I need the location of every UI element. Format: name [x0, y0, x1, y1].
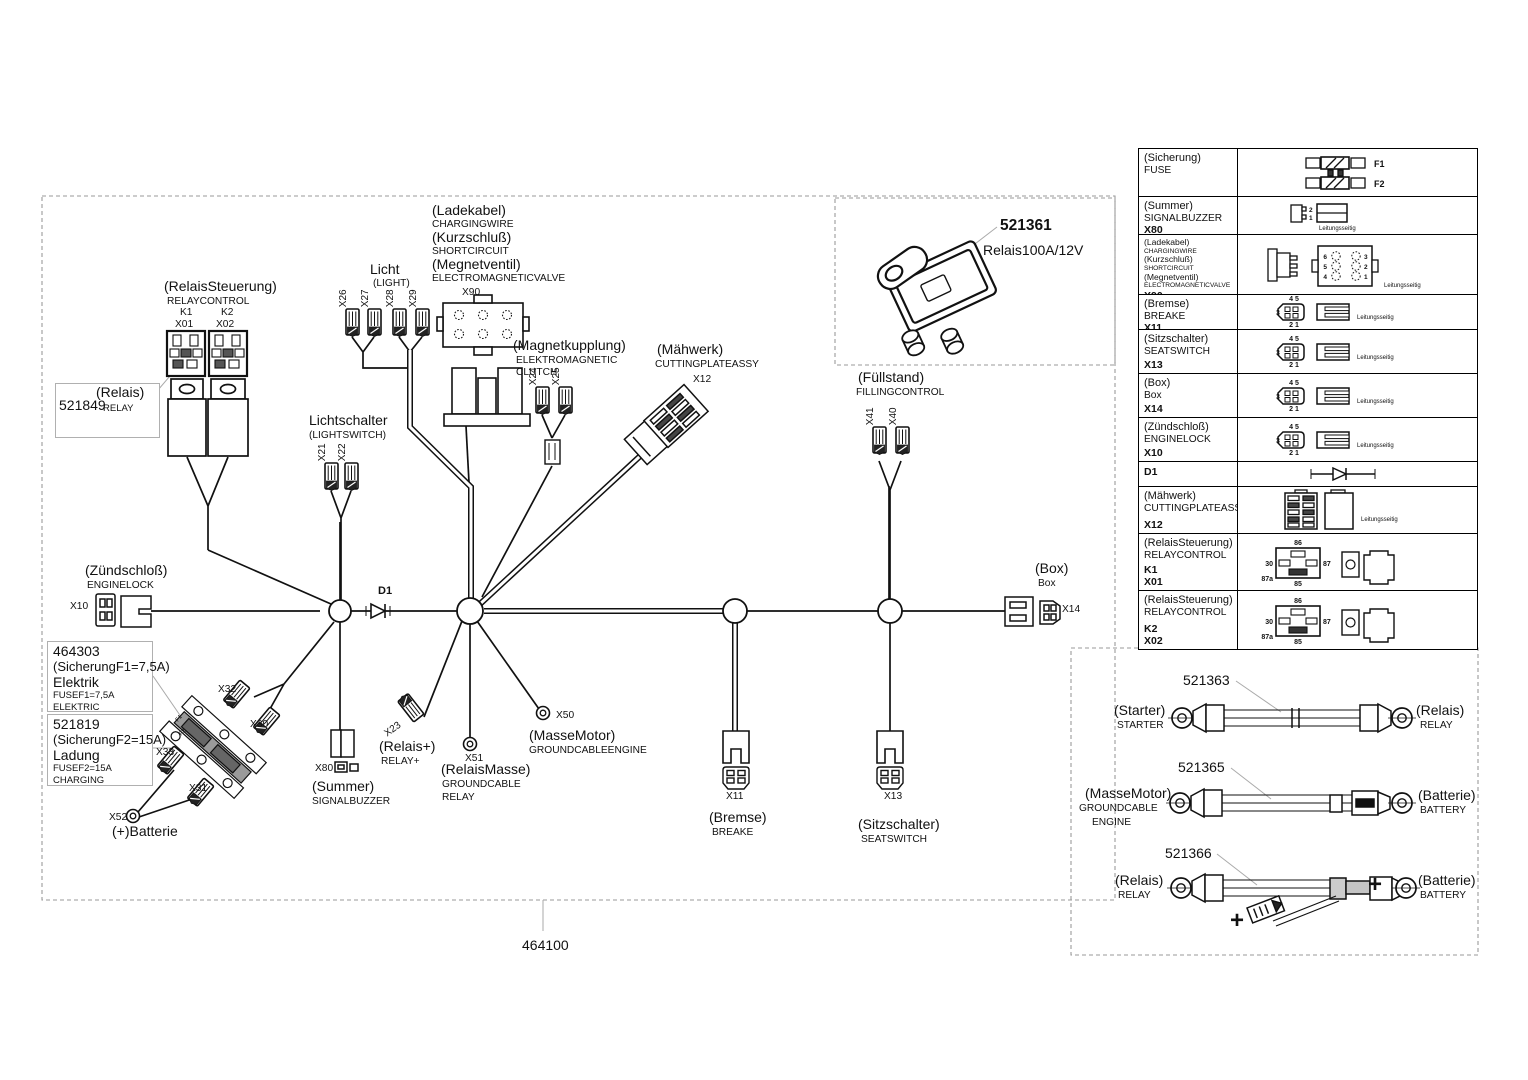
- inset-part-number: 521361: [1000, 217, 1052, 234]
- box-connector-drawing: [1005, 597, 1060, 626]
- connector-x90-label: X90: [462, 287, 480, 298]
- connector-x24-label: X24: [528, 367, 539, 385]
- connector-x26-label: X26: [338, 289, 349, 307]
- diode-d1-label: D1: [378, 585, 392, 597]
- inset-relay-name: Relais100A/12V: [983, 243, 1083, 259]
- connector-x50-label: X50: [556, 710, 574, 721]
- groundengine-label-en: GROUNDCABLEENGINE: [529, 745, 647, 756]
- cable1-right-en: RELAY: [1420, 720, 1453, 731]
- svg-text:F1: F1: [1374, 159, 1385, 169]
- box-label-en: Box: [1038, 578, 1056, 589]
- connector-x13-label: X13: [884, 791, 902, 802]
- cable-521366-drawing: [1167, 874, 1420, 926]
- enginelock-label-de: (Zündschloß): [85, 563, 167, 579]
- svg-text:1: 1: [1364, 274, 1368, 281]
- cable2-part-number: 521365: [1178, 760, 1225, 776]
- cable3-left-de: (Relais): [1115, 873, 1163, 889]
- cable3-part-number: 521366: [1165, 846, 1212, 862]
- x12-legend-icon: Leitungsseitig: [1273, 489, 1443, 531]
- junction-2: [457, 598, 483, 624]
- cable1-left-en: STARTER: [1117, 720, 1164, 731]
- svg-text:Leitungsseitig: Leitungsseitig: [1384, 283, 1421, 289]
- brake-label-de: (Bremse): [709, 810, 767, 826]
- table-row-brake: (Bremse)BREAKEX11: [1139, 295, 1477, 330]
- groundrelay-label-de: (RelaisMasse): [441, 762, 530, 778]
- relayplus-label-en: RELAY+: [381, 756, 420, 767]
- plus-marker-battery: +: [1368, 872, 1382, 899]
- cable1-left-de: (Starter): [1114, 703, 1165, 719]
- cutting-connector-drawing: [624, 385, 708, 465]
- svg-text:1: 1: [1309, 215, 1313, 222]
- wiring-diagram-page: 4 5 3 2 1 Leitungsseitig 86 30 87 87a 85: [0, 0, 1528, 1080]
- filling-label-en: FILLINGCONTROL: [856, 387, 944, 398]
- cable-521365-drawing: [1166, 789, 1416, 817]
- table-row-buzzer: (Summer)SIGNALBUZZERX80 2 1 Leitungsseit…: [1139, 197, 1477, 235]
- buzzer-label-de: (Summer): [312, 779, 374, 795]
- seat-label-en: SEATSWITCH: [861, 834, 927, 845]
- harness-part-number: 464100: [522, 938, 569, 954]
- table-row-box: (Box)BoxX14: [1139, 374, 1477, 418]
- table-row-enginelock: (Zündschloß)ENGINELOCKX10: [1139, 418, 1477, 462]
- cable2-right-de: (Batterie): [1418, 788, 1476, 804]
- connector-x80-label: X80: [315, 763, 333, 774]
- connector-x29-label: X29: [408, 289, 419, 307]
- table-row-relay-k1: (RelaisSteuerung)RELAYCONTROL K1X01: [1139, 534, 1477, 591]
- connector-x32-label: X32: [218, 684, 236, 695]
- clutch-label-de: (Magnetkupplung): [513, 338, 626, 354]
- cable2-right-en: BATTERY: [1420, 805, 1466, 816]
- enginelock-label-en: ENGINELOCK: [87, 580, 154, 591]
- box-label-de: (Box): [1035, 561, 1068, 577]
- relay-k2-label: K2: [221, 307, 233, 318]
- connector-x22-label: X22: [337, 443, 348, 461]
- fuse-icon: F1 F2: [1278, 152, 1438, 194]
- connector-x28-label: X28: [385, 289, 396, 307]
- seat-label-de: (Sitzschalter): [858, 817, 940, 833]
- connector-x52-label: X52: [109, 812, 127, 823]
- buzzer-drawing: [331, 730, 358, 772]
- connector-x10-label: X10: [70, 601, 88, 612]
- svg-text:F2: F2: [1374, 179, 1385, 189]
- table-row-seat: (Sitzschalter)SEATSWITCHX13: [1139, 330, 1477, 374]
- table-row-fuse: (Sicherung)FUSE F1 F2: [1139, 149, 1477, 197]
- relay-part-en: RELAY: [103, 404, 133, 415]
- relay-x02-label: X02: [216, 319, 234, 330]
- cable1-right-de: (Relais): [1416, 703, 1464, 719]
- cutting-label-en: CUTTINGPLATEASSY: [655, 359, 759, 370]
- relay-100a-drawing: [873, 240, 997, 372]
- cable1-part-number: 521363: [1183, 673, 1230, 689]
- connector-x27-label: X27: [360, 289, 371, 307]
- cable2-left-en2: ENGINE: [1092, 817, 1131, 828]
- svg-text:2: 2: [1309, 207, 1313, 214]
- battery-plus-label: (+)Batterie: [112, 824, 178, 840]
- enginelock-connector-drawing: [96, 594, 151, 627]
- minus-marker: [1356, 799, 1374, 807]
- svg-text:4: 4: [1323, 274, 1327, 281]
- connector-x11-label: X11: [726, 791, 743, 802]
- svg-text:Leitungsseitig: Leitungsseitig: [1319, 226, 1356, 232]
- junction-3: [723, 599, 747, 623]
- brake-connector-drawing: [723, 731, 749, 763]
- groundrelay-label-en1: GROUNDCABLE: [442, 779, 521, 790]
- cable-521363-drawing: [1168, 704, 1416, 732]
- connector-x25-label: X25: [551, 367, 562, 385]
- svg-text:2: 2: [1364, 264, 1368, 271]
- connector-legend-table: (Sicherung)FUSE F1 F2 (Summer)SIGNALBUZZ…: [1138, 148, 1478, 650]
- seat-connector-drawing: [877, 731, 903, 763]
- diode-legend-icon: [1303, 465, 1413, 483]
- table-row-relay-k2: (RelaisSteuerung)RELAYCONTROL K2X02: [1139, 591, 1477, 649]
- cable3-right-en: BATTERY: [1420, 890, 1466, 901]
- groundengine-label-de: (MasseMotor): [529, 728, 615, 744]
- relay-x01-label: X01: [175, 319, 193, 330]
- connector-x21-label: X21: [317, 443, 328, 461]
- relay-k1-label: K1: [180, 307, 192, 318]
- connector-x41-label: X41: [865, 407, 876, 425]
- relay-bodies-drawing: [168, 379, 248, 456]
- plus-marker-branch: +: [1230, 908, 1244, 935]
- relaycontrol-label-en: RELAYCONTROL: [167, 296, 249, 307]
- cutting-label-de: (Mähwerk): [657, 342, 723, 358]
- connector-x14-label: X14: [1062, 604, 1080, 615]
- svg-text:3: 3: [1364, 254, 1368, 261]
- relay-sockets-drawing: [167, 331, 247, 376]
- fuse1-part-box: 464303 (SicherungF1=7,5A) Elektrik FUSEF…: [47, 641, 153, 712]
- table-row-cutting: (Mähwerk)CUTTINGPLATEASSYX12 Leitungssei…: [1139, 487, 1477, 534]
- x90-legend-icon: 6 5 4 3 2 1 Leitungsseitig: [1260, 238, 1455, 292]
- charging-label-block: (Ladekabel) CHARGINGWIRE (Kurzschluß) SH…: [432, 203, 565, 284]
- svg-text:6: 6: [1323, 254, 1327, 261]
- table-row-x90: (Ladekabel)CHARGINGWIRE (Kurzschluß)SHOR…: [1139, 235, 1477, 295]
- light-label-de: Licht: [370, 262, 400, 278]
- table-row-diode: D1: [1139, 462, 1477, 487]
- cable3-right-de: (Batterie): [1418, 873, 1476, 889]
- brake-label-en: BREAKE: [712, 827, 753, 838]
- buzzer-icon: 2 1 Leitungsseitig: [1283, 200, 1433, 232]
- light-label-en: (LIGHT): [373, 278, 410, 289]
- junction-1: [329, 600, 351, 622]
- fuse2-part-box: 521819 (SicherungF2=15A) Ladung FUSEF2=1…: [47, 714, 153, 786]
- connector-x31-label: X31: [189, 783, 207, 794]
- cable2-left-en1: GROUNDCABLE: [1079, 803, 1158, 814]
- clutch-label-en1: ELEKTROMAGNETIC: [516, 355, 617, 366]
- cable2-left-de: (MasseMotor): [1085, 786, 1171, 802]
- connector-x40-label: X40: [888, 407, 899, 425]
- buzzer-label-en: SIGNALBUZZER: [312, 796, 390, 807]
- cable3-left-en: RELAY: [1118, 890, 1151, 901]
- groundrelay-label-en2: RELAY: [442, 792, 475, 803]
- connector-x30-label: X30: [250, 719, 268, 730]
- relaycontrol-label-de: (RelaisSteuerung): [164, 279, 277, 295]
- junction-4: [878, 599, 902, 623]
- connector-x12-label: X12: [693, 374, 711, 385]
- lightswitch-label-de: Lichtschalter: [309, 413, 388, 429]
- relay-part-de: (Relais): [96, 385, 144, 401]
- filling-label-de: (Füllstand): [858, 370, 924, 386]
- lightswitch-label-en: (LIGHTSWITCH): [309, 430, 386, 441]
- connector-x33-label: X33: [156, 747, 174, 758]
- svg-text:5: 5: [1323, 264, 1327, 271]
- relayplus-label-de: (Relais+): [379, 739, 435, 755]
- svg-text:Leitungsseitig: Leitungsseitig: [1361, 517, 1398, 523]
